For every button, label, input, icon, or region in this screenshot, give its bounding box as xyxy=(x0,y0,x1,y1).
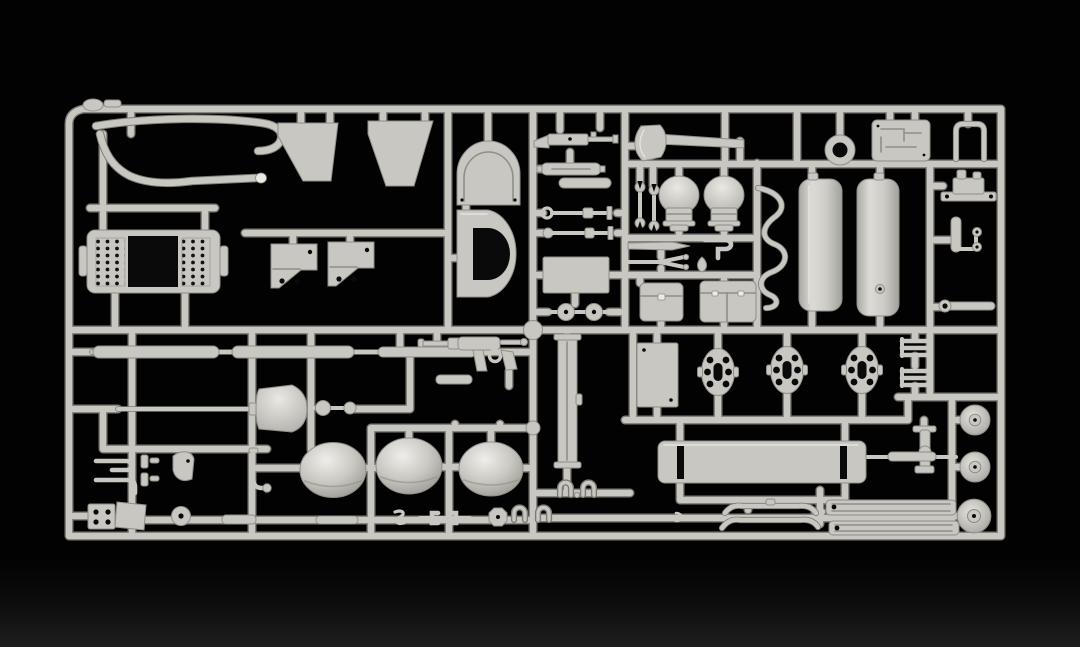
part-pouch-box-a xyxy=(640,283,683,321)
part-detail-box xyxy=(872,120,930,161)
part-stowage-box xyxy=(637,343,678,407)
part-slotted-plate xyxy=(658,441,866,483)
part-fuel-tank-b xyxy=(857,173,899,316)
part-road-wheel-b xyxy=(960,452,990,482)
part-magazine-rod xyxy=(436,375,472,384)
sprue-gate-main xyxy=(524,321,543,340)
part-pouch-box-b xyxy=(700,281,756,322)
part-arched-hatch xyxy=(457,141,520,205)
part-octagon-disc xyxy=(489,508,507,526)
part-pulley-disc xyxy=(172,507,191,526)
part-pennant-blade xyxy=(173,452,194,481)
part-comb-clip-b xyxy=(902,369,928,386)
part-wheel-arch-d xyxy=(457,210,516,297)
part-plain-box xyxy=(543,257,609,293)
corner-knob xyxy=(83,99,103,111)
floor-glow xyxy=(0,556,1080,647)
part-tow-ring xyxy=(825,135,855,165)
part-four-hole-plate xyxy=(88,502,146,530)
part-egg-domes xyxy=(300,438,523,498)
part-funnel-bell-a xyxy=(659,176,699,231)
part-clamp-ball xyxy=(574,492,579,497)
photo-stage xyxy=(0,0,1080,647)
part-road-wheel-a xyxy=(960,405,990,435)
sprue-gate-lower xyxy=(526,421,540,435)
part-road-wheel-c xyxy=(957,499,991,533)
part-funnel-bell-b xyxy=(704,176,744,231)
part-perforated-drum xyxy=(79,230,228,293)
sprue-photo xyxy=(0,0,1080,647)
part-pull-handle xyxy=(939,300,995,312)
part-comb-clip-a xyxy=(902,339,928,356)
corner-tab xyxy=(104,100,121,107)
part-long-rods xyxy=(92,346,478,358)
part-fuel-tank-a xyxy=(799,173,842,311)
